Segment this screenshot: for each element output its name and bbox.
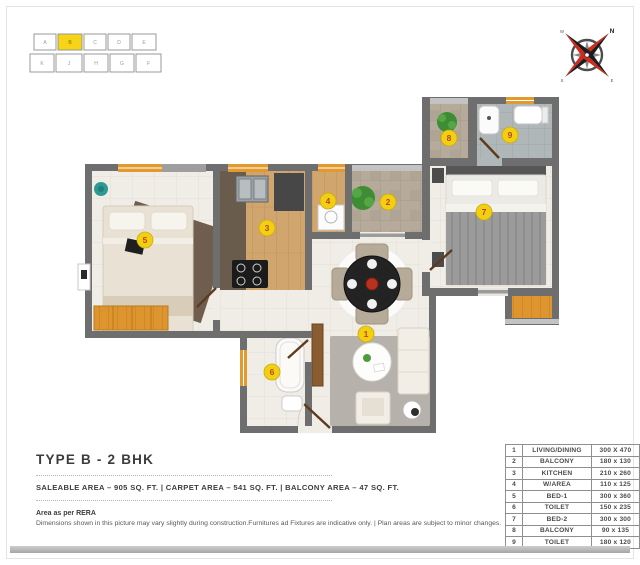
wall [468,97,477,158]
toilet6-wc [282,396,302,411]
legend-row-name: LIVING/DINING [523,445,592,457]
balcony-right-railing [505,319,559,324]
balcony2-plant-leaf [364,197,374,207]
wall-column [162,164,206,172]
legend-row: 7BED-2300 x 300 [506,514,640,526]
divider [36,475,332,476]
room-bed2-furniture [432,166,546,285]
wall [213,164,220,288]
bed1-plant-center [98,186,104,192]
bed1-pillow [109,212,145,230]
wall [502,158,559,166]
room-marker-9: 9 [502,127,518,143]
door-gap-toilet9 [477,158,502,166]
divider [36,500,332,501]
living-sofa [398,328,429,394]
legend-row-name: KITCHEN [523,468,592,480]
balcony2-plant-leaf [352,188,362,198]
rera-note: Area as per RERA [36,510,456,517]
legend-row-name: BALCONY [523,456,592,468]
legend-row-name: W/AREA [523,479,592,491]
dining-centerpiece [366,278,378,290]
toilet9-wc-tank [542,107,548,123]
living-coffee-table [353,343,391,381]
toilet9-drain [487,116,491,120]
wall [213,320,220,331]
coffee-table-plant [363,354,371,362]
legend-row-size: 300 X 470 [591,445,639,457]
plan-title: TYPE B - 2 BHK [36,452,456,467]
legend-row-name: BED-2 [523,514,592,526]
bed1-pillow [151,212,187,230]
wall [305,232,312,290]
disclaimer-text: Dimensions shown in this picture may var… [36,520,456,527]
legend-row-number: 8 [506,525,523,537]
legend-row: 1LIVING/DINING300 X 470 [506,445,640,457]
coffee-table-book [374,363,385,372]
wall [422,97,430,240]
kitchen-stove [232,260,268,288]
legend-row-name: BALCONY [523,525,592,537]
legend-row: 4W/AREA110 x 125 [506,479,640,491]
living-console [312,324,323,386]
room-marker-5: 5 [137,232,153,248]
wall [305,232,360,239]
legend-row-size: 90 x 135 [591,525,639,537]
room-marker-6: 6 [264,364,280,380]
room-marker-number: 9 [508,130,513,140]
door-gap-entrance [298,426,332,433]
brochure-page: ABCDEKJHGF N W S E [0,0,640,565]
legend-row-number: 7 [506,514,523,526]
living-armchair-cushion [362,398,384,416]
wall [305,362,312,426]
balcony8-railing [430,98,468,104]
balcony2-railing [352,165,422,171]
room-balcony-right-floor [512,296,552,318]
bed2-sheet-fold [446,204,546,212]
legend-row-number: 6 [506,502,523,514]
slider-balcony2 [360,234,405,238]
room-marker-number: 8 [447,133,452,143]
room-marker-7: 7 [476,204,492,220]
room-marker-number: 6 [270,367,275,377]
room-marker-number: 4 [326,196,331,206]
legend-row: 3KITCHEN210 x 260 [506,468,640,480]
legend-row-number: 5 [506,491,523,503]
legend-row-size: 110 x 125 [591,479,639,491]
legend-row-size: 180 x 130 [591,456,639,468]
bottom-shadow-band [10,546,630,553]
balcony8-plant-leaf [448,121,456,129]
legend-row-size: 300 x 300 [591,514,639,526]
wall [247,331,312,338]
slider-balcony-right [478,290,508,294]
room-marker-4: 4 [320,193,336,209]
legend-row-number: 2 [506,456,523,468]
area-summary: SALEABLE AREA – 905 SQ. FT. | CARPET ARE… [36,483,456,492]
door-gap-bed1 [213,288,220,320]
room-marker-number: 3 [265,223,270,233]
legend-row-number: 4 [506,479,523,491]
bed1-wardrobe [94,306,168,330]
wall [422,158,477,166]
info-block: TYPE B - 2 BHK SALEABLE AREA – 905 SQ. F… [36,452,456,527]
door-gap-bed2 [422,240,430,272]
wall [345,164,352,239]
legend-row-size: 300 x 360 [591,491,639,503]
room-marker-3: 3 [259,220,275,236]
balcony8-plant-leaf [438,114,446,122]
room-marker-2: 2 [380,194,396,210]
legend-row: 2BALCONY180 x 130 [506,456,640,468]
bed2-nightstand [432,168,444,183]
legend-row-size: 150 x 235 [591,502,639,514]
room-balcony8-furniture [437,112,457,132]
utility-box [78,264,90,290]
legend-table: 1LIVING/DINING300 X 4702BALCONY180 x 130… [505,444,640,549]
toilet9-wc [514,106,542,124]
bed2-headboard [446,166,546,175]
kitchen-fridge [274,173,304,211]
kitchen-sink-basin [239,179,251,199]
living-side-table-tray [411,408,419,416]
kitchen-sink-basin [254,179,266,199]
bed2-pillow [452,180,492,196]
room-marker-8: 8 [441,130,457,146]
room-marker-1: 1 [358,326,374,342]
legend-row: 8BALCONY90 x 135 [506,525,640,537]
room-marker-number: 1 [364,329,369,339]
room-marker-number: 5 [143,235,148,245]
legend-row: 5BED-1300 x 360 [506,491,640,503]
wall [508,288,512,296]
legend-row: 6TOILET150 x 235 [506,502,640,514]
room-marker-number: 2 [386,197,391,207]
room-balcony2-furniture [351,186,375,210]
legend: 1LIVING/DINING300 X 4702BALCONY180 x 130… [505,444,640,549]
bed2-blanket [446,212,546,285]
legend-row-number: 1 [506,445,523,457]
legend-row-name: BED-1 [523,491,592,503]
room-marker-number: 7 [482,207,487,217]
wall [430,288,478,296]
legend-row-size: 210 x 260 [591,468,639,480]
legend-row-name: TOILET [523,502,592,514]
bed2-pillow [498,180,538,196]
utility-box-glyph [81,270,87,279]
legend-row-number: 3 [506,468,523,480]
wall [422,272,430,296]
